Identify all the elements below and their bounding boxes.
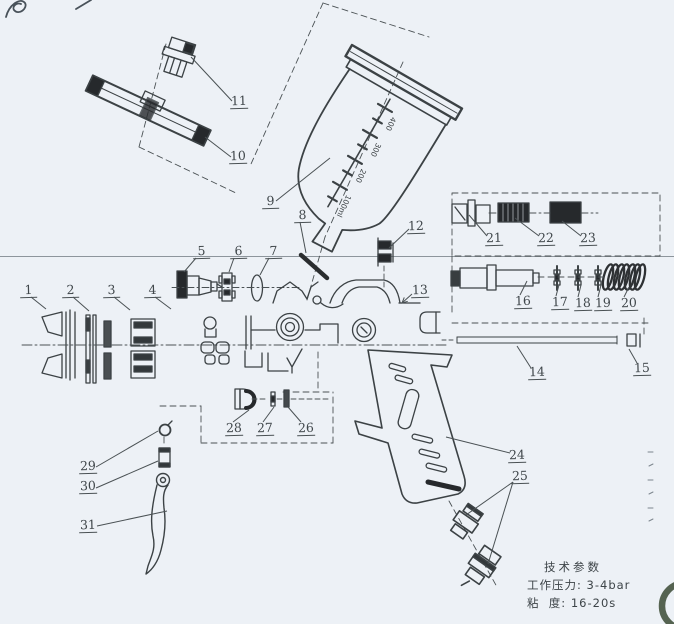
construction-dashes-seal-box (160, 352, 333, 447)
part-19-washer (595, 266, 601, 290)
edge-marks (648, 452, 653, 521)
leader-line-25 (466, 482, 513, 515)
part-14-fluid-tube (442, 336, 617, 344)
part-6-packing-nut (219, 273, 235, 301)
leader-line-8 (300, 222, 306, 253)
construction-dash-inlet (449, 501, 497, 587)
stamp-mark (662, 583, 674, 624)
part-25-inlet-fitting-upper (447, 502, 484, 541)
part-20-spring (601, 263, 647, 290)
leader-line-4 (155, 297, 171, 309)
leader-line-9 (276, 158, 330, 201)
part-18-washer (575, 266, 581, 290)
leader-line-15 (629, 349, 637, 363)
cup-scale-label: 300 (369, 142, 383, 159)
part-11-lid-screw (157, 36, 198, 79)
part-3-baffle-plate (104, 321, 111, 379)
spec-value-viscosity: 16-20s (571, 596, 616, 610)
part-10-cup-lid (86, 68, 214, 146)
specs-title: 技术参数 (544, 559, 630, 577)
leader-line-27 (263, 407, 274, 422)
leader-line-14 (517, 346, 531, 368)
leader-lines-layer (31, 57, 637, 564)
leader-line-1 (31, 297, 46, 309)
leader-line-26 (288, 407, 301, 422)
leader-line-29 (96, 431, 158, 467)
leader-line-6 (229, 258, 234, 272)
part-30-pin (159, 448, 170, 467)
leader-line-10 (205, 137, 231, 157)
leader-line-7 (260, 258, 269, 275)
part-7-o-ring (252, 275, 263, 301)
tech-specs: 技术参数 工作压力: 3-4bar 粘 度: 16-20s (527, 559, 630, 612)
diagram-linework: 400 300 200 100ml (0, 0, 674, 624)
leader-line-2 (73, 297, 89, 311)
part-4-retainer-ring (131, 319, 155, 378)
diagram-page: 400 300 200 100ml (0, 0, 674, 624)
spec-row-viscosity: 粘 度: 16-20s (527, 595, 630, 613)
spec-label-pressure: 工作压力: (527, 578, 582, 592)
spec-value-pressure: 3-4bar (587, 578, 631, 592)
leader-line-30 (96, 461, 158, 488)
leader-line-3 (114, 297, 130, 310)
part-25-inlet-fitting-lower (456, 544, 503, 596)
part-15-tube-end (627, 334, 640, 347)
part-31-trigger (146, 474, 170, 575)
leader-line-5 (184, 258, 196, 272)
leader-line-11 (191, 57, 232, 101)
spec-row-pressure: 工作压力: 3-4bar (527, 577, 630, 595)
part-24-handle (355, 350, 465, 503)
part-2-ring-plates (86, 315, 96, 383)
part-16-valve-stem (451, 265, 539, 290)
part-26-washer (284, 390, 289, 407)
cup-scale-label: 100ml (335, 193, 353, 218)
cup-scale: 400 300 200 100ml (319, 95, 406, 219)
construction-dashes-cup (251, 3, 429, 300)
spec-label-viscosity: 粘 度: (527, 596, 566, 610)
part-22-knurled-knob (498, 203, 529, 222)
part-23-adjust-knob (550, 202, 581, 223)
cup-scale-label: 400 (384, 116, 398, 133)
leader-line-28 (233, 410, 249, 422)
leader-line-16 (520, 281, 527, 295)
handwritten-mark (6, 0, 91, 17)
gun-body (201, 280, 440, 373)
leader-line-31 (97, 511, 167, 526)
part-21-valve-fitting (452, 200, 490, 226)
part-5-fluid-nozzle (177, 271, 222, 298)
part-8-needle (301, 255, 327, 278)
leader-line-25 (488, 482, 513, 564)
part-29-ball (160, 421, 173, 436)
leader-line-12 (389, 229, 409, 248)
part-27-washer (271, 392, 275, 406)
cup-scale-label: 200 (354, 167, 368, 184)
